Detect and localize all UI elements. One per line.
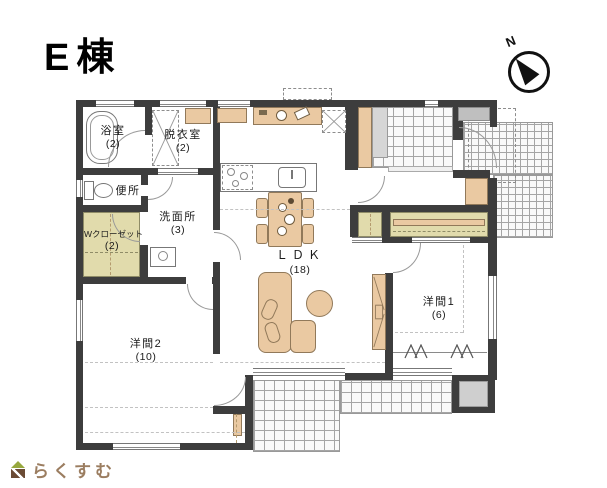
door-arc	[214, 232, 241, 260]
house-body-icon	[11, 469, 25, 478]
toilet-tank	[84, 181, 94, 200]
terrace-tiles	[340, 380, 452, 414]
dining-chair	[256, 198, 268, 218]
wall	[438, 100, 497, 107]
wall	[76, 168, 158, 175]
window	[76, 180, 83, 197]
window	[393, 368, 452, 376]
tv-board	[372, 274, 386, 350]
wall	[350, 205, 490, 212]
stove-burner	[240, 172, 248, 180]
door-arc	[358, 176, 385, 203]
genkan-step	[388, 166, 453, 172]
kitchen-pot-icon	[276, 110, 287, 121]
logo-text: らくすむ	[32, 457, 116, 482]
window	[218, 100, 250, 107]
door-arc	[393, 243, 421, 273]
entrance-porch-tiles	[493, 175, 553, 238]
floor-guide-line	[85, 407, 213, 408]
room-name: 洋間1	[423, 296, 456, 308]
room-label-washroom: 洗面所 (3)	[145, 210, 211, 238]
wall	[76, 100, 96, 107]
zigzag-mark-icon	[448, 344, 476, 359]
equipment-pad-inner	[459, 381, 488, 407]
refrigerator-space	[322, 110, 346, 133]
room-name: 便所	[116, 185, 141, 197]
sofa-seat	[290, 320, 316, 353]
room-name: ＬＤＫ	[276, 248, 324, 262]
wall	[134, 100, 160, 107]
wall	[213, 262, 220, 277]
wall	[213, 175, 220, 230]
closet-dashed-line	[370, 214, 371, 235]
tableware-icon	[288, 198, 294, 204]
room-label-bath: 浴室 (2)	[82, 124, 144, 152]
wall	[488, 243, 497, 276]
wall	[140, 245, 148, 277]
sliding-glass-door	[253, 368, 345, 376]
wall	[385, 273, 393, 380]
entrance-storage-box	[458, 107, 490, 121]
wall	[245, 375, 253, 450]
wall	[76, 443, 113, 450]
wall	[198, 168, 220, 175]
floor-guide-line	[220, 209, 350, 210]
room-name: 脱衣室	[164, 129, 202, 141]
house-icon	[10, 461, 27, 478]
window	[488, 276, 497, 339]
round-table	[306, 290, 333, 317]
kitchen-faucet	[291, 170, 293, 179]
dining-chair	[302, 224, 314, 244]
window	[113, 443, 180, 450]
room-size: (18)	[268, 264, 332, 278]
window	[96, 100, 134, 107]
closet-sliding-door	[352, 237, 382, 243]
wall	[76, 341, 83, 443]
room-label-bedroom1: 洋間1 (6)	[408, 295, 470, 323]
hall-storage	[465, 178, 488, 205]
room-name: 洋間2	[130, 338, 163, 350]
room-label-ldk: ＬＤＫ (18)	[268, 248, 332, 277]
genkan-shelf	[372, 107, 388, 158]
shoe-cabinet	[358, 107, 372, 168]
closet-dashed-line	[393, 231, 485, 232]
window	[76, 300, 83, 341]
door-arc	[214, 377, 246, 406]
room-name: 洗面所	[159, 211, 197, 223]
wall	[350, 212, 358, 237]
compass: N	[500, 34, 556, 96]
room-size: (2)	[84, 240, 140, 254]
wall	[345, 373, 393, 380]
window	[425, 100, 438, 107]
room-size: (2)	[82, 138, 144, 152]
wall	[145, 107, 152, 135]
wall	[470, 237, 490, 243]
wall	[250, 100, 353, 107]
house-roof-icon	[11, 461, 25, 468]
washbasin-bowl	[158, 251, 168, 261]
room-size: (2)	[152, 142, 214, 156]
room-name: Wクローゼット	[84, 229, 143, 239]
wall	[180, 443, 253, 450]
wall	[213, 284, 220, 354]
wall	[76, 197, 83, 300]
kitchen-cabinet	[217, 108, 247, 123]
room-label-bedroom2: 洋間2 (10)	[115, 337, 177, 365]
room-size: (6)	[408, 309, 470, 323]
closet-hanger-pipe	[393, 219, 485, 226]
eaves-dashed-outline	[283, 88, 332, 100]
dressing-room-cabinet	[185, 108, 211, 124]
sliding-door	[158, 168, 198, 175]
wall	[213, 406, 247, 414]
tableware-icon	[284, 214, 295, 225]
kitchen-appliance-icon	[259, 110, 267, 115]
wall	[488, 339, 497, 380]
stove-burner	[227, 168, 235, 176]
floor-guide-line	[395, 332, 463, 333]
wall	[212, 277, 220, 284]
wall	[76, 205, 148, 212]
compass-north-label: N	[504, 33, 518, 50]
tableware-icon	[277, 226, 287, 236]
floor-guide-line	[85, 432, 245, 433]
terrace-tiles	[253, 380, 340, 452]
wall	[76, 277, 186, 284]
door-arc	[187, 284, 213, 310]
floor-plan-page: E棟 N	[0, 0, 607, 488]
wall	[206, 100, 218, 107]
floor-guide-line	[236, 414, 237, 443]
logo: らくすむ	[10, 457, 116, 482]
dining-chair	[256, 224, 268, 244]
room-label-wcloset: Wクローゼット (2)	[84, 229, 140, 254]
dining-chair	[302, 198, 314, 218]
stove-burner	[232, 180, 239, 187]
wall	[353, 100, 425, 107]
window	[160, 100, 206, 107]
zigzag-mark-icon	[402, 344, 430, 359]
page-title: E棟	[44, 26, 121, 81]
wall	[490, 107, 497, 127]
room-size: (3)	[145, 224, 211, 238]
tableware-icon	[278, 203, 287, 212]
wall	[345, 103, 358, 170]
room-label-dressing: 脱衣室 (2)	[152, 128, 214, 156]
floor-guide-line	[220, 362, 385, 363]
room-name: 浴室	[101, 125, 126, 137]
room-label-toilet: 便所	[104, 184, 152, 198]
wall	[453, 170, 490, 178]
room-size: (10)	[115, 351, 177, 365]
